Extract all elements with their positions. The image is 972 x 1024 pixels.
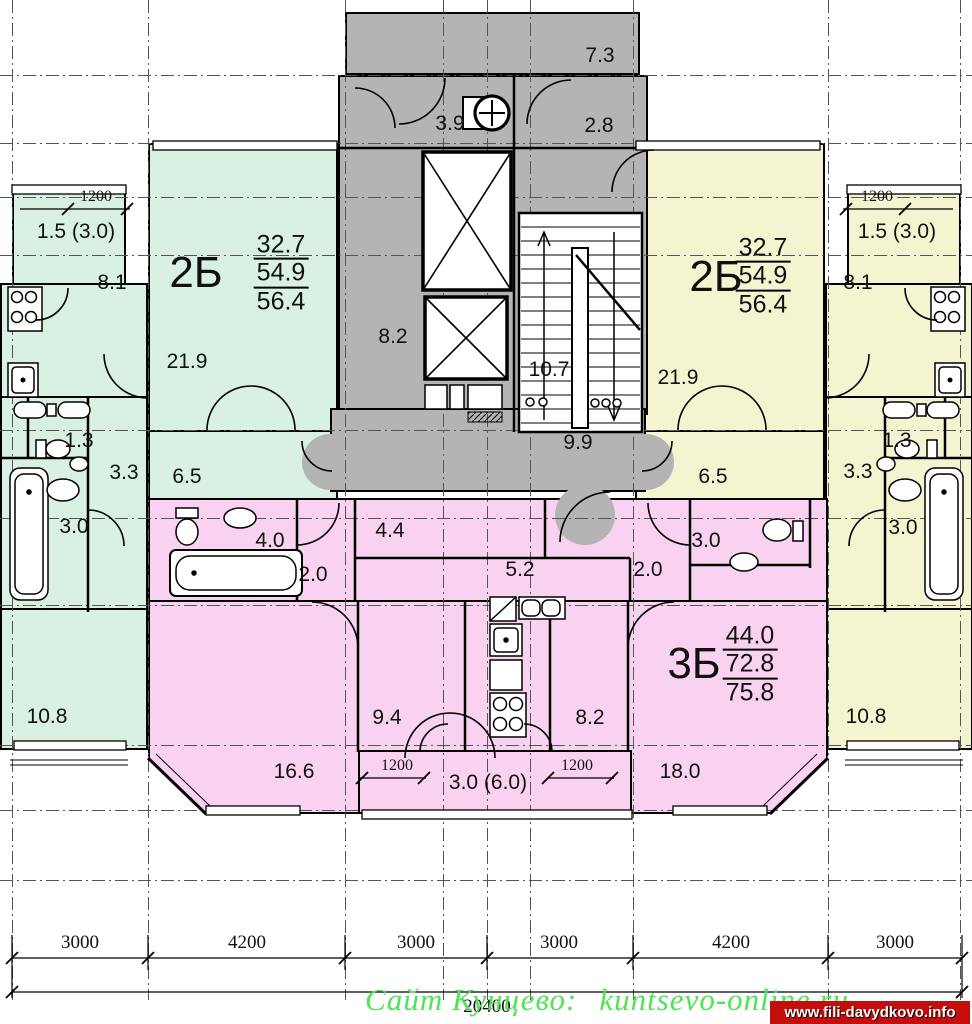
bottom-corridor-area-label: 4.4: [375, 519, 404, 543]
right-kitchen-area-label: 8.1: [843, 271, 872, 295]
bottom-hall-center-area-label: 5.2: [505, 558, 534, 582]
left-bedroom-area-label: 10.8: [27, 705, 68, 729]
axis-line-v: [633, 0, 634, 1000]
bottom-room-left-area-label: 16.6: [274, 760, 315, 784]
axis-line-h: [0, 197, 972, 198]
axis-line-v: [487, 0, 488, 1000]
left-apartment-type-label: 2Б: [169, 248, 222, 298]
bottom-apartment-type-label: 3Б: [667, 639, 720, 689]
bottom-balcony-dim-left-label: 1200: [381, 757, 413, 775]
corridor-door-swing-bottom: [555, 485, 615, 545]
dim-segment-5: 4200: [712, 932, 750, 954]
axis-line-h: [0, 745, 972, 746]
watermark-badge: www.fili-davydkovo.info: [770, 1001, 970, 1024]
bottom-living-area: 44.0: [723, 623, 778, 651]
bottom-room-center-area-label: 8.2: [575, 706, 604, 730]
axis-line-v: [530, 0, 531, 1000]
left-apartment-areas: 32.7 54.9 56.4: [254, 232, 309, 315]
right-kitchen: [825, 283, 972, 398]
axis-line-h: [0, 605, 972, 606]
axis-line-v: [828, 0, 829, 1000]
corridor-door-swing-right: [618, 434, 674, 490]
core-vestibule-area-label: 2.8: [584, 114, 613, 138]
right-total-area: 56.4: [736, 291, 791, 317]
axis-line-v: [443, 0, 444, 1000]
bottom-apartment-halls: [148, 498, 828, 602]
axis-line-h: [0, 430, 972, 431]
axis-line-h: [0, 75, 972, 76]
right-usable-area: 54.9: [736, 263, 791, 291]
core-lift-hall-area-label: 8.2: [378, 325, 407, 349]
left-usable-area: 54.9: [254, 260, 309, 288]
axis-line-h: [0, 143, 972, 144]
axis-line-v: [148, 0, 149, 1000]
right-living-area: 32.7: [736, 235, 791, 263]
bottom-hall-right-area-label: 2.0: [633, 558, 662, 582]
bottom-total-area: 75.8: [723, 679, 778, 705]
left-wc-area-label: 1.3: [64, 429, 93, 453]
core-corridor: [330, 408, 646, 492]
dim-segment-1: 3000: [61, 932, 99, 954]
bottom-kitchen-area-label: 9.4: [372, 706, 401, 730]
bottom-balcony-area-label: 3.0 (6.0): [449, 771, 527, 795]
axis-line-h: [0, 880, 972, 881]
left-balcony-area-label: 1.5 (3.0): [37, 220, 115, 244]
left-total-area: 56.4: [254, 288, 309, 314]
dim-segment-4: 3000: [540, 932, 578, 954]
bottom-wc-area-label: 3.0: [691, 529, 720, 553]
bottom-hall-left-area-label: 2.0: [298, 563, 327, 587]
watermark-site-label: Сайт Кунцево:: [365, 982, 577, 1018]
bottom-room-right-area-label: 18.0: [660, 760, 701, 784]
right-bedroom-area-label: 10.8: [846, 705, 887, 729]
right-apartment-areas: 32.7 54.9 56.4: [736, 235, 791, 318]
dim-segment-3: 3000: [397, 932, 435, 954]
bottom-apartment-areas: 44.0 72.8 75.8: [723, 623, 778, 706]
axis-line-h: [0, 518, 972, 519]
left-corridor-area-label: 6.5: [172, 465, 201, 489]
right-corridor-area-label: 6.5: [698, 465, 727, 489]
axis-line-v: [960, 0, 961, 1000]
right-balcony-area-label: 1.5 (3.0): [858, 220, 936, 244]
left-hall-area-label: 3.3: [109, 461, 138, 485]
floor-plan: 7.3 3.9 2.8 8.2 10.7 9.9 1200 1.5 (3.0) …: [0, 0, 972, 1024]
bottom-balcony-dim-right-label: 1200: [561, 757, 593, 775]
right-living-room-area-label: 21.9: [658, 366, 699, 390]
axis-line-v: [12, 0, 13, 1000]
dim-segment-6: 3000: [876, 932, 914, 954]
corridor-door-swing-left: [302, 434, 358, 490]
right-balcony-dim-label: 1200: [861, 188, 893, 206]
left-kitchen: [0, 283, 148, 398]
axis-line-v: [345, 0, 346, 1000]
right-bath-area-label: 3.0: [888, 516, 917, 540]
bottom-usable-area: 72.8: [723, 651, 778, 679]
left-living-room-area-label: 21.9: [167, 350, 208, 374]
axis-line-h: [0, 255, 972, 256]
core-chute-area-label: 3.9: [435, 112, 464, 136]
left-bedroom: [0, 608, 148, 750]
left-balcony-dim-label: 1200: [80, 188, 112, 206]
axis-line-h: [0, 810, 972, 811]
right-hall-area-label: 3.3: [843, 460, 872, 484]
left-kitchen-area-label: 8.1: [97, 271, 126, 295]
core-vent-area-label: 7.3: [585, 44, 614, 68]
dim-segment-2: 4200: [228, 932, 266, 954]
bottom-bath-area-label: 4.0: [255, 529, 284, 553]
core-stair-area-label: 10.7: [529, 358, 570, 382]
core-corridor-area-label: 9.9: [563, 431, 592, 455]
left-bath-area-label: 3.0: [59, 515, 88, 539]
left-living-area: 32.7: [254, 232, 309, 260]
right-wc-area-label: 1.3: [882, 429, 911, 453]
